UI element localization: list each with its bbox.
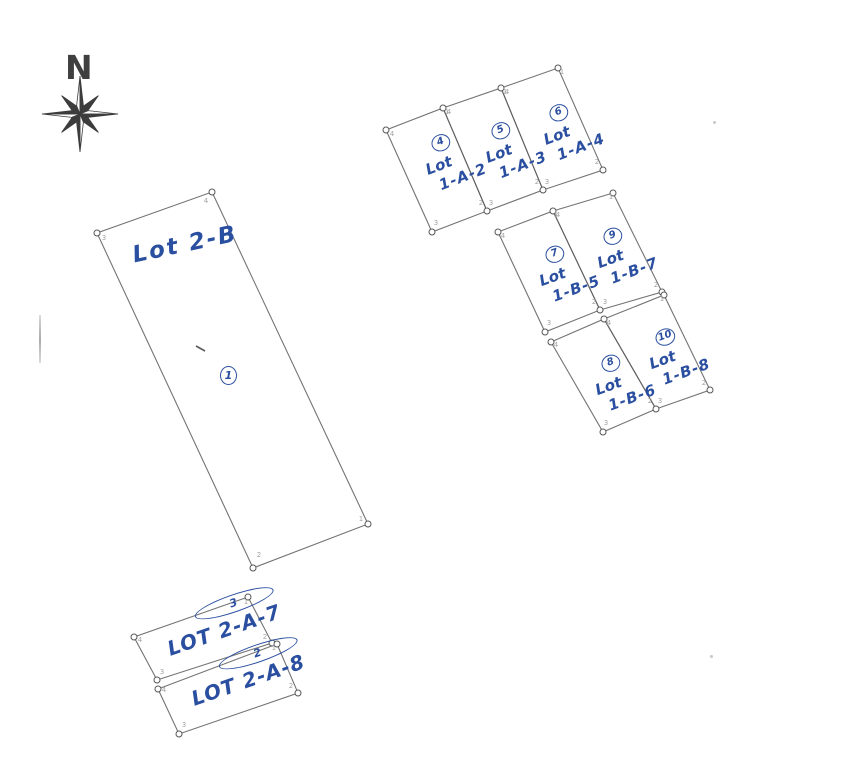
corner-number: 4 [501, 232, 506, 240]
corner-number: 3 [160, 668, 164, 676]
corner-number: 1 [660, 295, 664, 303]
scanned-plat-page: N [0, 0, 861, 778]
corner-monument-circle [600, 167, 606, 173]
corner-number: 4 [447, 108, 452, 116]
corner-monument-circle [707, 387, 713, 393]
corner-number: 4 [556, 211, 561, 219]
corner-number: 2 [257, 551, 261, 559]
compass-north-label: N [65, 48, 93, 87]
corner-monument-circle [131, 634, 137, 640]
corner-monument-circle [600, 429, 606, 435]
corner-number: 3 [604, 419, 608, 427]
corner-number: 4 [162, 686, 167, 694]
corner-monument-circle [155, 686, 161, 692]
corner-monument-circle [154, 677, 160, 683]
corner-number: 3 [489, 199, 493, 207]
corner-number: 3 [603, 298, 607, 306]
corner-monument-circle [295, 690, 301, 696]
corner-number: 3 [434, 219, 438, 227]
corner-number: 3 [547, 319, 551, 327]
stray-tick-mark [196, 346, 205, 351]
corner-number: 1 [359, 515, 363, 523]
corner-monument-circle [250, 565, 256, 571]
corner-number: 4 [554, 341, 559, 349]
compass-rose-icon: N [42, 48, 118, 152]
corner-monument-circle [542, 329, 548, 335]
corner-number: 3 [658, 397, 662, 405]
corner-number: 3 [102, 234, 106, 242]
corner-number: 2 [289, 682, 293, 690]
corner-number: 2 [595, 158, 599, 166]
corner-number: 2 [592, 298, 596, 306]
corner-monument-circle [383, 127, 389, 133]
corner-monument-circle [176, 731, 182, 737]
corner-number: 2 [479, 199, 483, 207]
corner-number: 4 [607, 319, 612, 327]
lot-2b-index-marker: 1 [220, 366, 237, 385]
corner-number: 1 [560, 68, 564, 76]
corner-monument-circle [484, 208, 490, 214]
corner-monument-circle [653, 406, 659, 412]
corner-number: 4 [505, 88, 510, 96]
corner-number: 1 [609, 193, 613, 201]
corner-number: 4 [390, 130, 395, 138]
corner-number: 2 [535, 178, 539, 186]
corner-number: 3 [182, 721, 186, 729]
corner-number: 4 [138, 636, 143, 644]
corner-monument-circle [365, 521, 371, 527]
corner-number: 2 [702, 379, 706, 387]
corner-monument-circle [94, 230, 100, 236]
corner-monument-circle [209, 189, 215, 195]
plat-drawing: N [0, 0, 861, 778]
corner-number: 4 [204, 197, 209, 205]
corner-number: 2 [654, 281, 658, 289]
scan-artifact-line [39, 315, 41, 363]
scan-speck [710, 655, 713, 658]
scan-speck [713, 121, 716, 124]
corner-monument-circle [597, 307, 603, 313]
corner-monument-circle [540, 187, 546, 193]
corner-monument-circle [429, 229, 435, 235]
corner-number: 3 [545, 178, 549, 186]
